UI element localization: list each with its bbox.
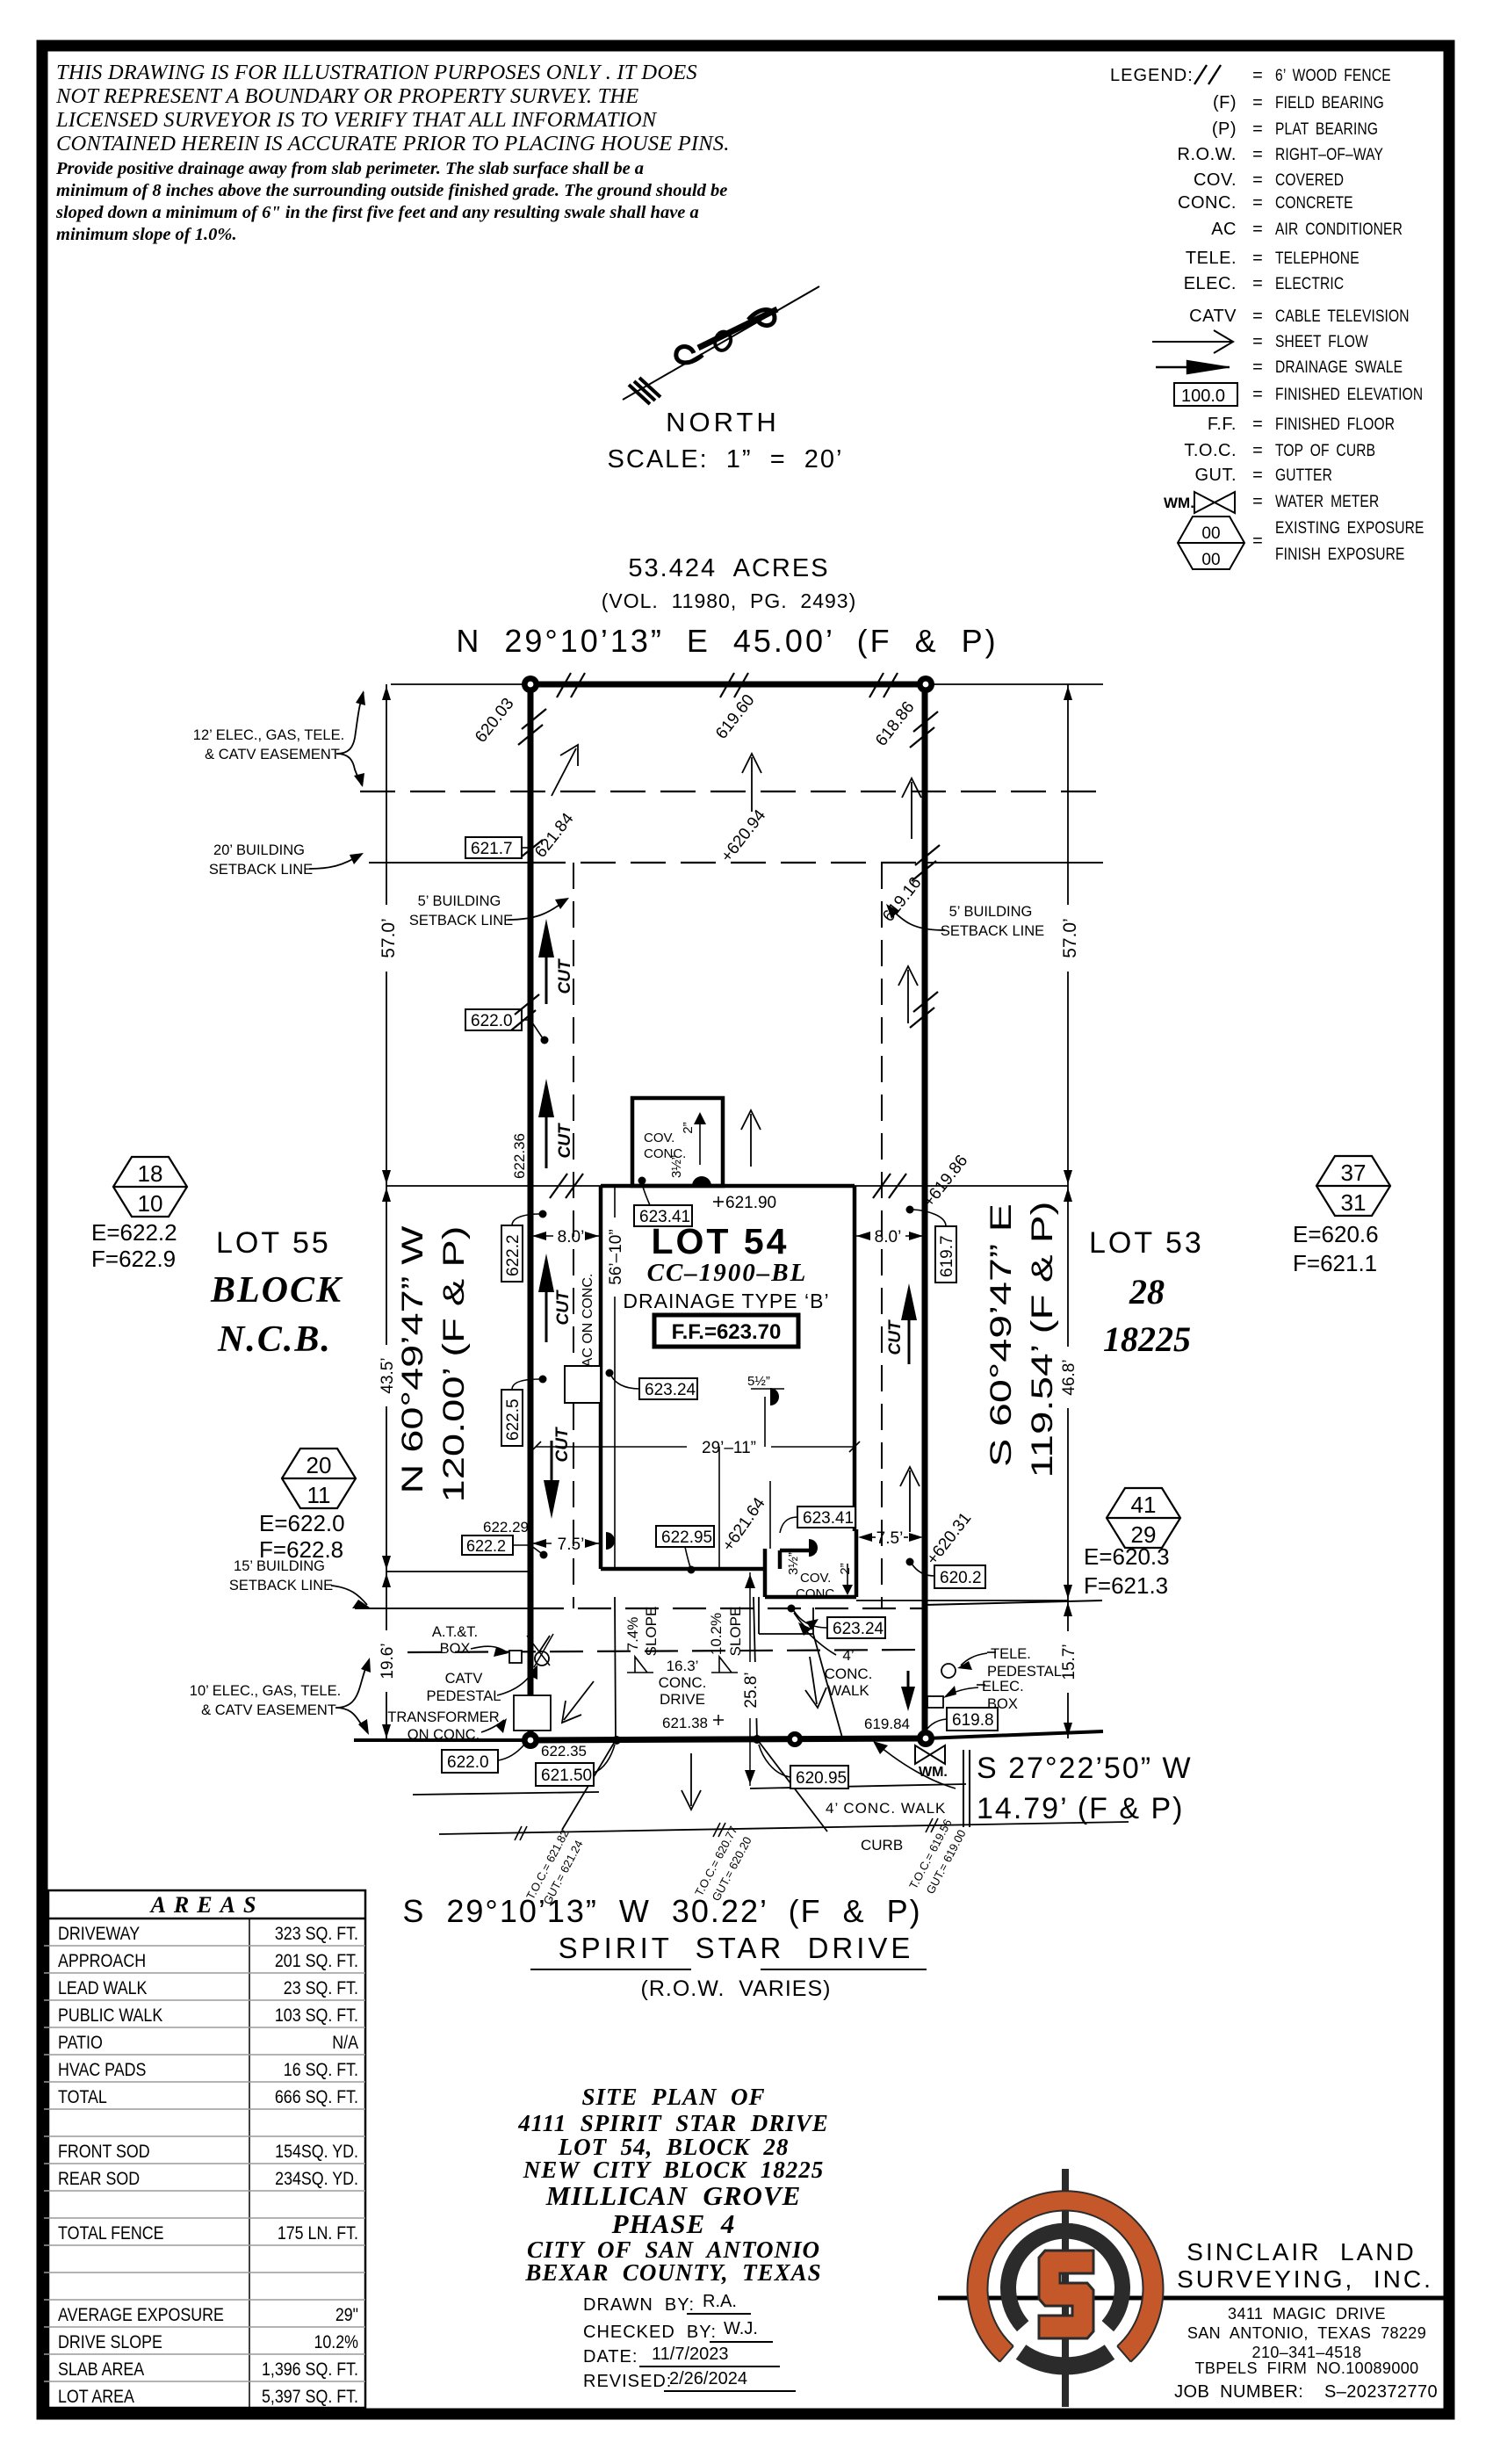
svg-text:REVISED:: REVISED:	[583, 2372, 672, 2391]
svg-text:MILLICAN GROVE: MILLICAN GROVE	[545, 2180, 802, 2211]
svg-text:(VOL. 11980, PG. 2493): (VOL. 11980, PG. 2493)	[602, 589, 857, 612]
svg-text:CUT: CUT	[556, 1123, 574, 1158]
svg-text:E=622.2: E=622.2	[91, 1219, 177, 1246]
svg-text:SETBACK LINE: SETBACK LINE	[229, 1578, 333, 1593]
svg-text:100.0: 100.0	[1181, 387, 1225, 406]
svg-text:DRAINAGE TYPE ‘B’: DRAINAGE TYPE ‘B’	[623, 1290, 829, 1312]
svg-text:CUT: CUT	[554, 1290, 573, 1325]
svg-text:FINISHED ELEVATION: FINISHED ELEVATION	[1275, 385, 1423, 404]
svg-text:SPIRIT STAR DRIVE: SPIRIT STAR DRIVE	[559, 1932, 914, 1964]
svg-text:TOTAL: TOTAL	[58, 2087, 107, 2108]
svg-text:4111 SPIRIT STAR DRIVE: 4111 SPIRIT STAR DRIVE	[517, 2110, 829, 2136]
svg-text:4’: 4’	[842, 1647, 854, 1664]
svg-text:REAR SOD: REAR SOD	[58, 2169, 140, 2190]
svg-text:16 SQ. FT.: 16 SQ. FT.	[284, 2060, 358, 2081]
svg-text:TOTAL FENCE: TOTAL FENCE	[58, 2223, 164, 2244]
svg-text:619.84: 619.84	[864, 1716, 910, 1732]
svg-text:HVAC PADS: HVAC PADS	[58, 2060, 146, 2081]
svg-text:622.0: 622.0	[447, 1753, 489, 1772]
svg-text:621.38: 621.38	[662, 1715, 708, 1731]
svg-text:8.0’: 8.0’	[875, 1228, 902, 1246]
svg-text:DRIVEWAY: DRIVEWAY	[58, 1924, 140, 1945]
svg-text:AREAS: AREAS	[149, 1892, 264, 1918]
svg-text:sloped down a minimum of 6" in: sloped down a minimum of 6" in the first…	[55, 203, 699, 222]
svg-text:175 LN. FT.: 175 LN. FT.	[278, 2223, 358, 2244]
svg-text:SITE PLAN OF: SITE PLAN OF	[581, 2084, 765, 2110]
svg-text:WATER METER: WATER METER	[1275, 492, 1379, 511]
svg-text:F=621.3: F=621.3	[1084, 1572, 1168, 1599]
svg-text:SETBACK LINE: SETBACK LINE	[941, 923, 1044, 939]
svg-text:623.24: 623.24	[645, 1381, 696, 1399]
svg-text:CONC.: CONC.	[1178, 193, 1237, 213]
svg-text:53.424 ACRES: 53.424 ACRES	[628, 554, 829, 582]
svg-text:18225: 18225	[1103, 1319, 1191, 1359]
svg-text:666 SQ. FT.: 666 SQ. FT.	[275, 2087, 358, 2108]
svg-text:=: =	[1252, 93, 1263, 112]
svg-text:WM.: WM.	[919, 1765, 948, 1780]
svg-text:2”: 2”	[838, 1563, 853, 1574]
svg-text:622.2: 622.2	[504, 1234, 523, 1276]
svg-text:TELE.: TELE.	[1186, 249, 1237, 268]
svg-text:(F): (F)	[1213, 93, 1237, 112]
svg-text:11: 11	[307, 1482, 331, 1508]
svg-text:BLOCK: BLOCK	[210, 1270, 343, 1311]
svg-text:=: =	[1252, 307, 1263, 326]
svg-text:COV.: COV.	[1194, 170, 1237, 190]
svg-text:S 60°49’47” E: S 60°49’47” E	[985, 1203, 1018, 1467]
svg-text:3½”: 3½”	[669, 1155, 684, 1178]
svg-text:29": 29"	[335, 2305, 358, 2326]
svg-text:THIS DRAWING IS FOR ILLUSTRATI: THIS DRAWING IS FOR ILLUSTRATION PURPOSE…	[56, 61, 697, 84]
svg-text:F=621.1: F=621.1	[1293, 1250, 1377, 1276]
svg-text:SAN ANTONIO, TEXAS 78229: SAN ANTONIO, TEXAS 78229	[1187, 2324, 1426, 2342]
svg-text:56’–10”: 56’–10”	[607, 1229, 625, 1284]
svg-text:PEDESTAL: PEDESTAL	[987, 1664, 1062, 1680]
svg-text:LEAD WALK: LEAD WALK	[58, 1978, 147, 1999]
svg-text:AVERAGE EXPOSURE: AVERAGE EXPOSURE	[58, 2305, 224, 2326]
svg-text:PUBLIC WALK: PUBLIC WALK	[58, 2005, 162, 2027]
svg-text:SETBACK LINE: SETBACK LINE	[209, 862, 313, 878]
svg-text:NORTH: NORTH	[666, 407, 780, 437]
svg-text:623.41: 623.41	[639, 1208, 690, 1226]
svg-text:619.7: 619.7	[938, 1235, 956, 1277]
svg-text:R.A.: R.A.	[703, 2292, 737, 2311]
svg-text:N 60°49’47” W: N 60°49’47” W	[396, 1226, 429, 1494]
svg-text:120.00’ (F & P): 120.00’ (F & P)	[437, 1226, 471, 1503]
svg-text:20: 20	[307, 1452, 332, 1478]
svg-text:SINCLAIR LAND: SINCLAIR LAND	[1186, 2238, 1416, 2265]
svg-text:620.2: 620.2	[940, 1569, 982, 1587]
svg-text:LOT AREA: LOT AREA	[58, 2387, 134, 2408]
svg-text:00: 00	[1201, 551, 1220, 569]
svg-text:R.O.W.: R.O.W.	[1178, 145, 1237, 164]
svg-text:622.29: 622.29	[483, 1519, 529, 1535]
svg-text:APPROACH: APPROACH	[58, 1951, 146, 1972]
svg-text:CONC.: CONC.	[796, 1586, 838, 1601]
svg-text:LEGEND:: LEGEND:	[1110, 66, 1194, 85]
svg-text:FINISH EXPOSURE: FINISH EXPOSURE	[1275, 545, 1405, 564]
svg-text:621.90: 621.90	[725, 1194, 776, 1212]
svg-text:621.7: 621.7	[471, 840, 513, 858]
svg-text:210–341–4518: 210–341–4518	[1252, 2344, 1362, 2361]
svg-text:WALK: WALK	[827, 1682, 869, 1699]
svg-text:=: =	[1252, 358, 1263, 377]
svg-text:2/26/2024: 2/26/2024	[669, 2369, 747, 2388]
svg-text:621.50: 621.50	[541, 1767, 592, 1785]
svg-text:=: =	[1252, 249, 1263, 268]
svg-text:LOT 53: LOT 53	[1089, 1226, 1204, 1260]
svg-text:BEXAR COUNTY, TEXAS: BEXAR COUNTY, TEXAS	[524, 2259, 821, 2286]
svg-text:AIR CONDITIONER: AIR CONDITIONER	[1275, 220, 1403, 239]
svg-text:623.24: 623.24	[833, 1620, 884, 1638]
svg-text:TELEPHONE: TELEPHONE	[1275, 249, 1360, 268]
svg-text:GUTTER: GUTTER	[1275, 466, 1332, 485]
svg-text:CATV: CATV	[445, 1671, 483, 1687]
svg-text:SLOPE: SLOPE	[643, 1607, 660, 1657]
svg-text:=: =	[1252, 119, 1263, 139]
svg-text:14.79’ (F & P): 14.79’ (F & P)	[977, 1792, 1184, 1825]
svg-text:F.F.: F.F.	[1208, 415, 1237, 434]
svg-text:CURB: CURB	[861, 1837, 903, 1853]
svg-text:15.7’: 15.7’	[1060, 1644, 1078, 1680]
svg-text:=: =	[1252, 466, 1263, 485]
svg-text:DATE:: DATE:	[583, 2347, 638, 2366]
svg-text:620.95: 620.95	[796, 1769, 847, 1788]
svg-text:N/A: N/A	[332, 2033, 358, 2054]
svg-text:(P): (P)	[1212, 119, 1237, 139]
svg-text:NEW CITY BLOCK 18225: NEW CITY BLOCK 18225	[523, 2157, 825, 2183]
svg-text:TELE.: TELE.	[991, 1646, 1031, 1662]
svg-text:28: 28	[1129, 1272, 1165, 1311]
svg-text:SETBACK LINE: SETBACK LINE	[409, 913, 513, 929]
svg-text:S 27°22’50” W: S 27°22’50” W	[977, 1752, 1193, 1785]
svg-text:5,397 SQ. FT.: 5,397 SQ. FT.	[262, 2387, 358, 2408]
svg-text:SURVEYING, INC.: SURVEYING, INC.	[1177, 2265, 1433, 2293]
svg-text:622.95: 622.95	[661, 1528, 712, 1547]
svg-text:=: =	[1252, 66, 1263, 85]
svg-text:5’ BUILDING: 5’ BUILDING	[949, 904, 1033, 920]
svg-text:AC ON CONC.: AC ON CONC.	[581, 1274, 595, 1368]
svg-text:ELEC.: ELEC.	[1184, 274, 1237, 293]
svg-text:& CATV EASEMENT: & CATV EASEMENT	[205, 747, 340, 762]
svg-text:(R.O.W. VARIES): (R.O.W. VARIES)	[641, 1976, 832, 2001]
svg-text:GUT.: GUT.	[1194, 466, 1237, 485]
svg-text:37: 37	[1341, 1160, 1367, 1186]
svg-text:SLAB AREA: SLAB AREA	[58, 2359, 144, 2381]
svg-text:57.0’: 57.0’	[379, 918, 399, 958]
svg-text:A.T.&T.: A.T.&T.	[432, 1624, 478, 1640]
svg-text:PATIO: PATIO	[58, 2033, 103, 2054]
svg-text:CATV: CATV	[1189, 307, 1237, 326]
svg-text:20’ BUILDING: 20’ BUILDING	[213, 842, 305, 858]
svg-text:T.O.C.: T.O.C.	[1184, 441, 1237, 460]
svg-text:SCALE: 1” = 20’: SCALE: 1” = 20’	[608, 445, 844, 473]
svg-text:10.2%: 10.2%	[314, 2332, 358, 2353]
svg-text:622.35: 622.35	[541, 1743, 587, 1759]
svg-text:F.F.=623.70: F.F.=623.70	[672, 1320, 782, 1344]
svg-text:CONC.: CONC.	[825, 1666, 873, 1682]
svg-text:CUT: CUT	[553, 1427, 572, 1462]
svg-text:41: 41	[1131, 1492, 1157, 1518]
svg-text:25.8’: 25.8’	[742, 1672, 761, 1708]
svg-text:COVERED: COVERED	[1275, 170, 1344, 190]
svg-text:19.6’: 19.6’	[379, 1643, 397, 1679]
svg-text:201 SQ. FT.: 201 SQ. FT.	[275, 1951, 358, 1972]
svg-text:DRIVE: DRIVE	[660, 1691, 705, 1708]
svg-text:=: =	[1252, 492, 1263, 511]
svg-text:234SQ. YD.: 234SQ. YD.	[275, 2169, 358, 2190]
svg-text:7.5’: 7.5’	[558, 1535, 585, 1554]
svg-text:FIELD BEARING: FIELD BEARING	[1275, 93, 1384, 112]
svg-text:12’ ELEC., GAS, TELE.: 12’ ELEC., GAS, TELE.	[193, 727, 344, 743]
svg-text:619.8: 619.8	[952, 1711, 994, 1730]
svg-text:& CATV EASEMENT: & CATV EASEMENT	[201, 1702, 336, 1718]
svg-text:8.0’: 8.0’	[558, 1228, 585, 1246]
svg-text:CONTAINED HEREIN IS ACCURATE P: CONTAINED HEREIN IS ACCURATE PRIOR TO PL…	[56, 132, 730, 155]
svg-text:23 SQ. FT.: 23 SQ. FT.	[284, 1978, 358, 1999]
svg-text:11/7/2023: 11/7/2023	[652, 2345, 729, 2364]
svg-text:TBPELS FIRM NO.10089000: TBPELS FIRM NO.10089000	[1194, 2359, 1418, 2377]
svg-text:=: =	[1252, 220, 1263, 239]
svg-text:=: =	[1252, 441, 1263, 460]
svg-text:ELECTRIC: ELECTRIC	[1275, 274, 1344, 293]
svg-text:57.0’: 57.0’	[1060, 918, 1080, 958]
svg-text:RIGHT–OF–WAY: RIGHT–OF–WAY	[1275, 145, 1383, 164]
svg-text:TRANSFORMER: TRANSFORMER	[387, 1709, 500, 1725]
svg-text:7.5’: 7.5’	[876, 1529, 904, 1548]
svg-text:103 SQ. FT.: 103 SQ. FT.	[275, 2005, 358, 2027]
svg-text:ON CONC.: ON CONC.	[408, 1727, 480, 1743]
svg-text:S 29°10’13” W 30.22’ (F &: S 29°10’13” W 30.22’ (F & P)	[402, 1893, 921, 1929]
svg-text:E=622.0: E=622.0	[259, 1510, 345, 1536]
svg-text:N 29°10’13” E 45.00’ (F &: N 29°10’13” E 45.00’ (F & P)	[456, 623, 998, 659]
svg-text:154SQ. YD.: 154SQ. YD.	[275, 2142, 358, 2163]
svg-text:WM.: WM.	[1164, 495, 1194, 511]
svg-text:COV.: COV.	[800, 1571, 831, 1586]
svg-text:CABLE TELEVISION: CABLE TELEVISION	[1275, 307, 1410, 326]
svg-text:16.3’: 16.3’	[667, 1658, 699, 1674]
svg-text:F=622.8: F=622.8	[259, 1536, 343, 1563]
svg-text:E=620.3: E=620.3	[1084, 1543, 1170, 1570]
svg-text:PLAT BEARING: PLAT BEARING	[1275, 119, 1378, 139]
svg-text:1,396 SQ. FT.: 1,396 SQ. FT.	[262, 2359, 358, 2381]
svg-text:BOX: BOX	[440, 1641, 471, 1657]
svg-text:ELEC.: ELEC.	[982, 1679, 1024, 1694]
svg-text:FRONT SOD: FRONT SOD	[58, 2142, 150, 2163]
svg-text:SLOPE: SLOPE	[727, 1607, 744, 1657]
svg-text:=: =	[1252, 531, 1263, 551]
svg-text:29’–11”: 29’–11”	[702, 1439, 756, 1457]
svg-text:622.5: 622.5	[504, 1398, 523, 1441]
svg-text:TOP OF CURB: TOP OF CURB	[1275, 441, 1375, 460]
svg-text:FINISHED FLOOR: FINISHED FLOOR	[1275, 415, 1395, 434]
svg-text:=: =	[1252, 170, 1263, 190]
svg-text:minimum slope of 1.0%.: minimum slope of 1.0%.	[56, 225, 237, 244]
svg-text:18: 18	[138, 1160, 163, 1187]
svg-text:Provide positive drainage away: Provide positive drainage away from slab…	[55, 159, 644, 178]
svg-text:SHEET FLOW: SHEET FLOW	[1275, 332, 1368, 351]
svg-text:CUT: CUT	[886, 1319, 905, 1355]
svg-text:5’ BUILDING: 5’ BUILDING	[418, 893, 501, 909]
svg-text:622.0: 622.0	[471, 1012, 513, 1030]
svg-text:622.2: 622.2	[466, 1537, 506, 1555]
svg-text:623.41: 623.41	[803, 1509, 854, 1528]
svg-text:COV.: COV.	[644, 1131, 674, 1145]
svg-text:=: =	[1252, 332, 1263, 351]
svg-text:JOB NUMBER: S–202372770: JOB NUMBER: S–202372770	[1174, 2382, 1438, 2402]
svg-text:NOT REPRESENT A BOUNDARY OR PR: NOT REPRESENT A BOUNDARY OR PROPERTY SUR…	[55, 84, 638, 108]
svg-text:5½”: 5½”	[747, 1374, 770, 1389]
svg-text:W.J.: W.J.	[724, 2319, 758, 2338]
svg-text:CHECKED BY:: CHECKED BY:	[583, 2323, 717, 2342]
svg-text:=: =	[1252, 415, 1263, 434]
svg-text:2”: 2”	[681, 1122, 696, 1133]
svg-text:00: 00	[1201, 524, 1220, 543]
svg-text:3½”: 3½”	[786, 1552, 801, 1575]
svg-text:LOT 55: LOT 55	[216, 1226, 331, 1260]
svg-text:BOX: BOX	[987, 1696, 1018, 1712]
svg-text:6’ WOOD FENCE: 6’ WOOD FENCE	[1275, 66, 1391, 85]
svg-text:31: 31	[1341, 1189, 1367, 1216]
svg-text:3411 MAGIC DRIVE: 3411 MAGIC DRIVE	[1228, 2305, 1386, 2323]
svg-text:EXISTING EXPOSURE: EXISTING EXPOSURE	[1275, 518, 1424, 538]
svg-text:AC: AC	[1211, 220, 1237, 239]
svg-text:DRIVE SLOPE: DRIVE SLOPE	[58, 2332, 162, 2353]
svg-text:CONCRETE: CONCRETE	[1275, 193, 1353, 213]
svg-text:CC–1900–BL: CC–1900–BL	[647, 1259, 808, 1287]
svg-text:PEDESTAL: PEDESTAL	[427, 1688, 501, 1704]
svg-text:=: =	[1252, 145, 1263, 164]
svg-text:10.2%: 10.2%	[708, 1613, 725, 1655]
svg-text:119.54’ (F & P): 119.54’ (F & P)	[1026, 1202, 1059, 1478]
svg-text:DRAWN BY:: DRAWN BY:	[583, 2295, 695, 2315]
svg-text:CUT: CUT	[556, 958, 574, 994]
svg-text:323 SQ. FT.: 323 SQ. FT.	[275, 1924, 358, 1945]
svg-text:minimum of 8 inches above the: minimum of 8 inches above the surroundin…	[56, 181, 727, 200]
svg-text:=: =	[1252, 193, 1263, 213]
svg-text:LICENSED SURVEYOR IS TO VERIFY: LICENSED SURVEYOR IS TO VERIFY THAT ALL …	[55, 108, 658, 132]
svg-text:622.36: 622.36	[511, 1133, 528, 1179]
svg-text:=: =	[1252, 274, 1263, 293]
svg-text:E=620.6: E=620.6	[1293, 1221, 1379, 1247]
svg-text:=: =	[1252, 385, 1263, 404]
svg-text:10’ ELEC., GAS, TELE.: 10’ ELEC., GAS, TELE.	[190, 1683, 341, 1699]
svg-text:CONC.: CONC.	[659, 1674, 707, 1691]
svg-text:4’ CONC. WALK: 4’ CONC. WALK	[826, 1800, 946, 1817]
svg-text:N.C.B.: N.C.B.	[217, 1319, 332, 1360]
svg-text:7.4%: 7.4%	[624, 1617, 641, 1651]
svg-text:43.5’: 43.5’	[379, 1357, 397, 1393]
svg-text:PHASE 4: PHASE 4	[611, 2208, 736, 2239]
svg-text:10: 10	[138, 1190, 163, 1217]
svg-text:DRAINAGE SWALE: DRAINAGE SWALE	[1275, 358, 1403, 377]
svg-text:46.8’: 46.8’	[1060, 1359, 1078, 1395]
svg-text:F=622.9: F=622.9	[91, 1246, 176, 1272]
